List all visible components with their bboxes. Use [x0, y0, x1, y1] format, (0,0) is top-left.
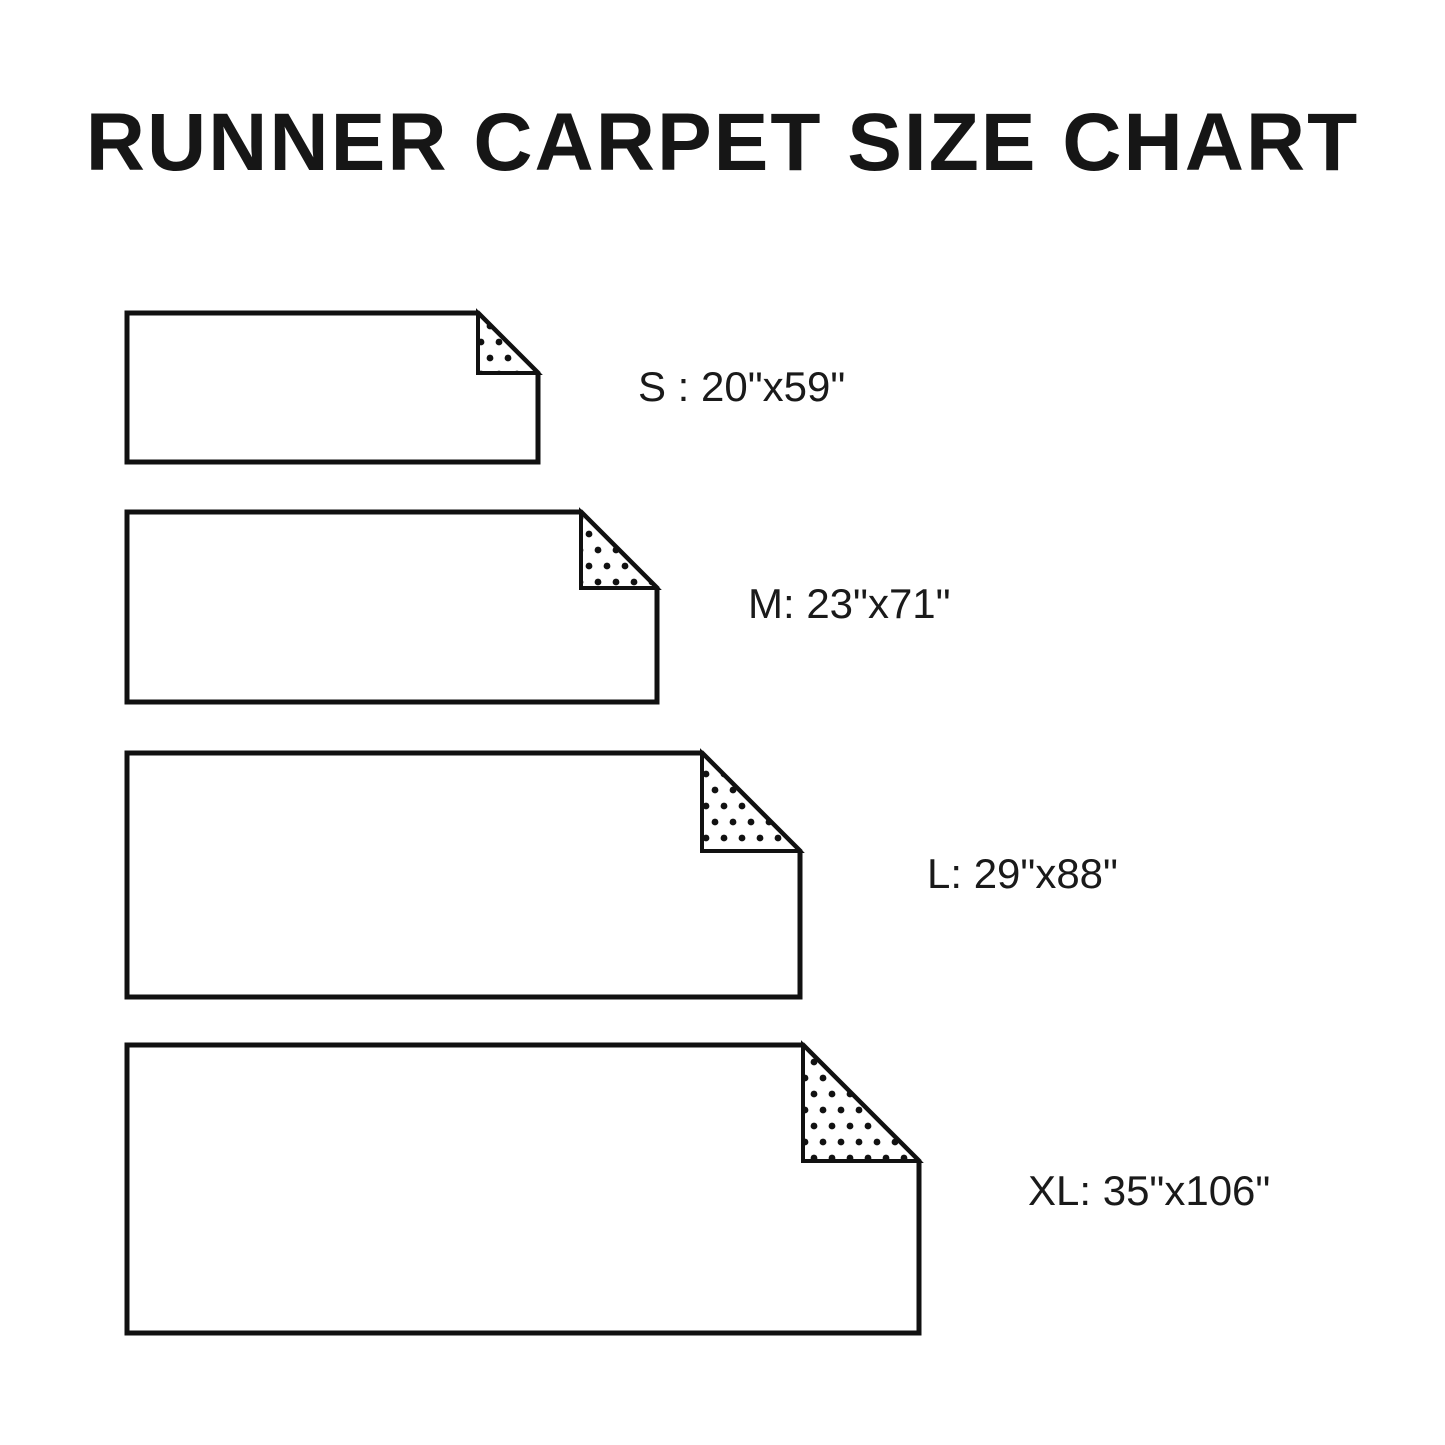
- carpet-shape-s: [127, 313, 538, 462]
- carpet-shape-xl: [127, 1045, 919, 1333]
- size-label-m: M: 23"x71": [748, 582, 951, 626]
- carpet-diagram: [0, 0, 1445, 1445]
- carpet-shape-l: [127, 753, 800, 997]
- folded-corner-dots-icon: [702, 753, 800, 851]
- size-label-xl: XL: 35"x106": [1028, 1169, 1270, 1213]
- folded-corner-dots-icon: [581, 512, 657, 588]
- folded-corner-dots-icon: [478, 313, 538, 373]
- carpet-shape-m: [127, 512, 657, 702]
- size-label-l: L: 29"x88": [927, 852, 1118, 896]
- runner-carpet-size-chart: RUNNER CARPET SIZE CHART: [0, 0, 1445, 1445]
- size-label-s: S : 20"x59": [638, 365, 845, 409]
- folded-corner-dots-icon: [803, 1045, 919, 1161]
